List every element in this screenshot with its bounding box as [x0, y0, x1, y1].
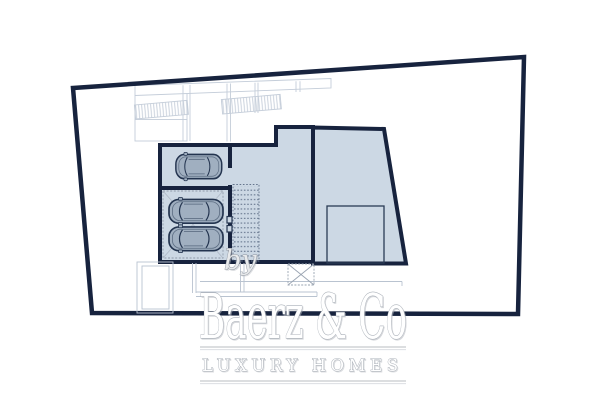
car-2 [169, 197, 223, 225]
floor-plan-svg: by Baerz & Co LUXURY HOMES [0, 0, 600, 400]
floor-plan-image: by Baerz & Co LUXURY HOMES [0, 0, 600, 400]
door-opening-patch [227, 168, 235, 185]
exterior-shaft-inner [142, 266, 169, 309]
exterior-stairs-left [134, 100, 188, 119]
car-3 [169, 225, 223, 253]
watermark-tagline: LUXURY HOMES [202, 356, 398, 375]
watermark-brand: Baerz & Co [199, 280, 407, 353]
watermark-by: by [224, 245, 257, 276]
car-1 [176, 152, 222, 180]
parked-cars [169, 152, 223, 252]
watermark: by Baerz & Co LUXURY HOMES [199, 245, 407, 384]
terrace-outline [135, 120, 187, 142]
